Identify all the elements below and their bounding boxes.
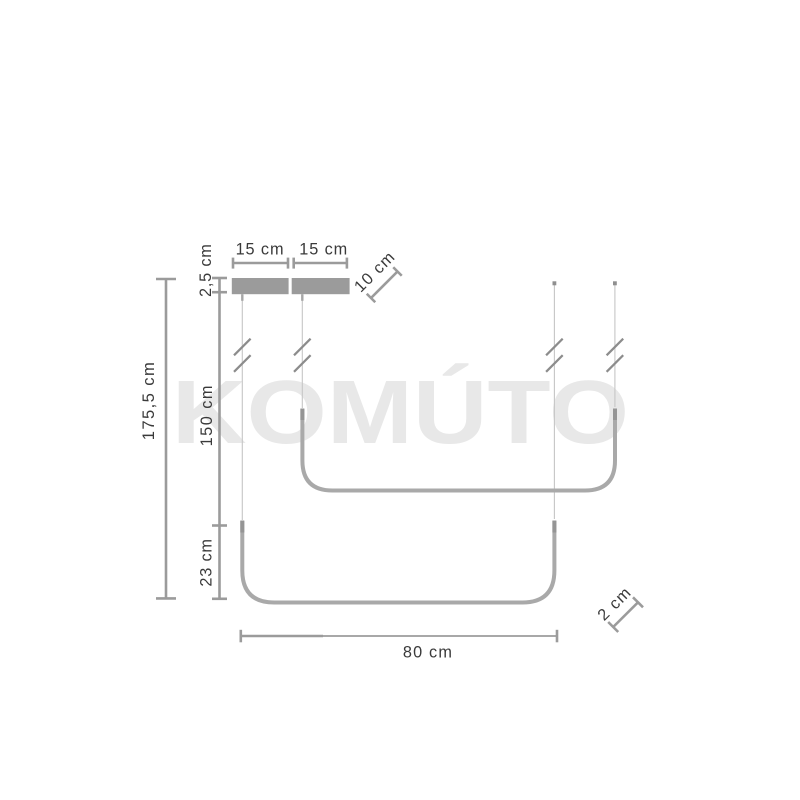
svg-text:150 cm: 150 cm xyxy=(198,384,216,446)
svg-text:15 cm: 15 cm xyxy=(236,241,285,259)
svg-text:175,5 cm: 175,5 cm xyxy=(139,361,158,440)
svg-text:23 cm: 23 cm xyxy=(198,538,216,586)
svg-text:2,5 cm: 2,5 cm xyxy=(197,243,215,297)
svg-text:KOMÚTO: KOMÚTO xyxy=(172,361,629,462)
svg-text:15 cm: 15 cm xyxy=(299,241,348,259)
svg-text:80 cm: 80 cm xyxy=(403,644,453,662)
